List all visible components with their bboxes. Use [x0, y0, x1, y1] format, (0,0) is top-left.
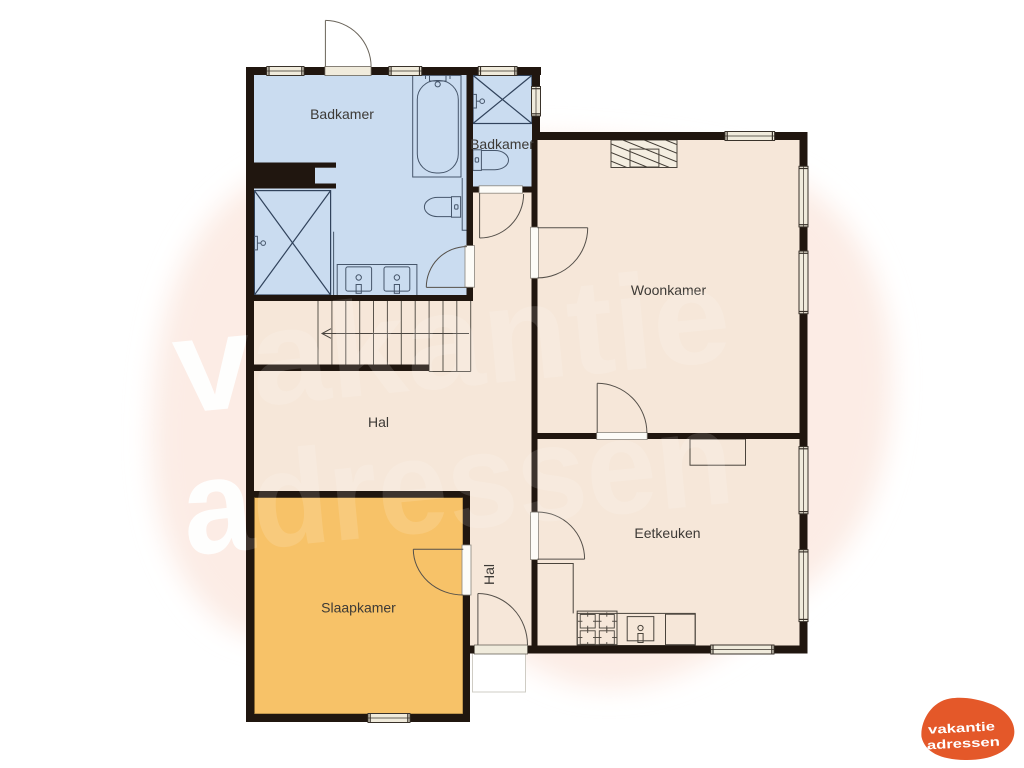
svg-text:Badkamer: Badkamer	[310, 106, 374, 122]
svg-text:Badkamer: Badkamer	[470, 136, 534, 152]
svg-text:Hal: Hal	[481, 564, 497, 585]
svg-text:Slaapkamer: Slaapkamer	[321, 600, 396, 616]
